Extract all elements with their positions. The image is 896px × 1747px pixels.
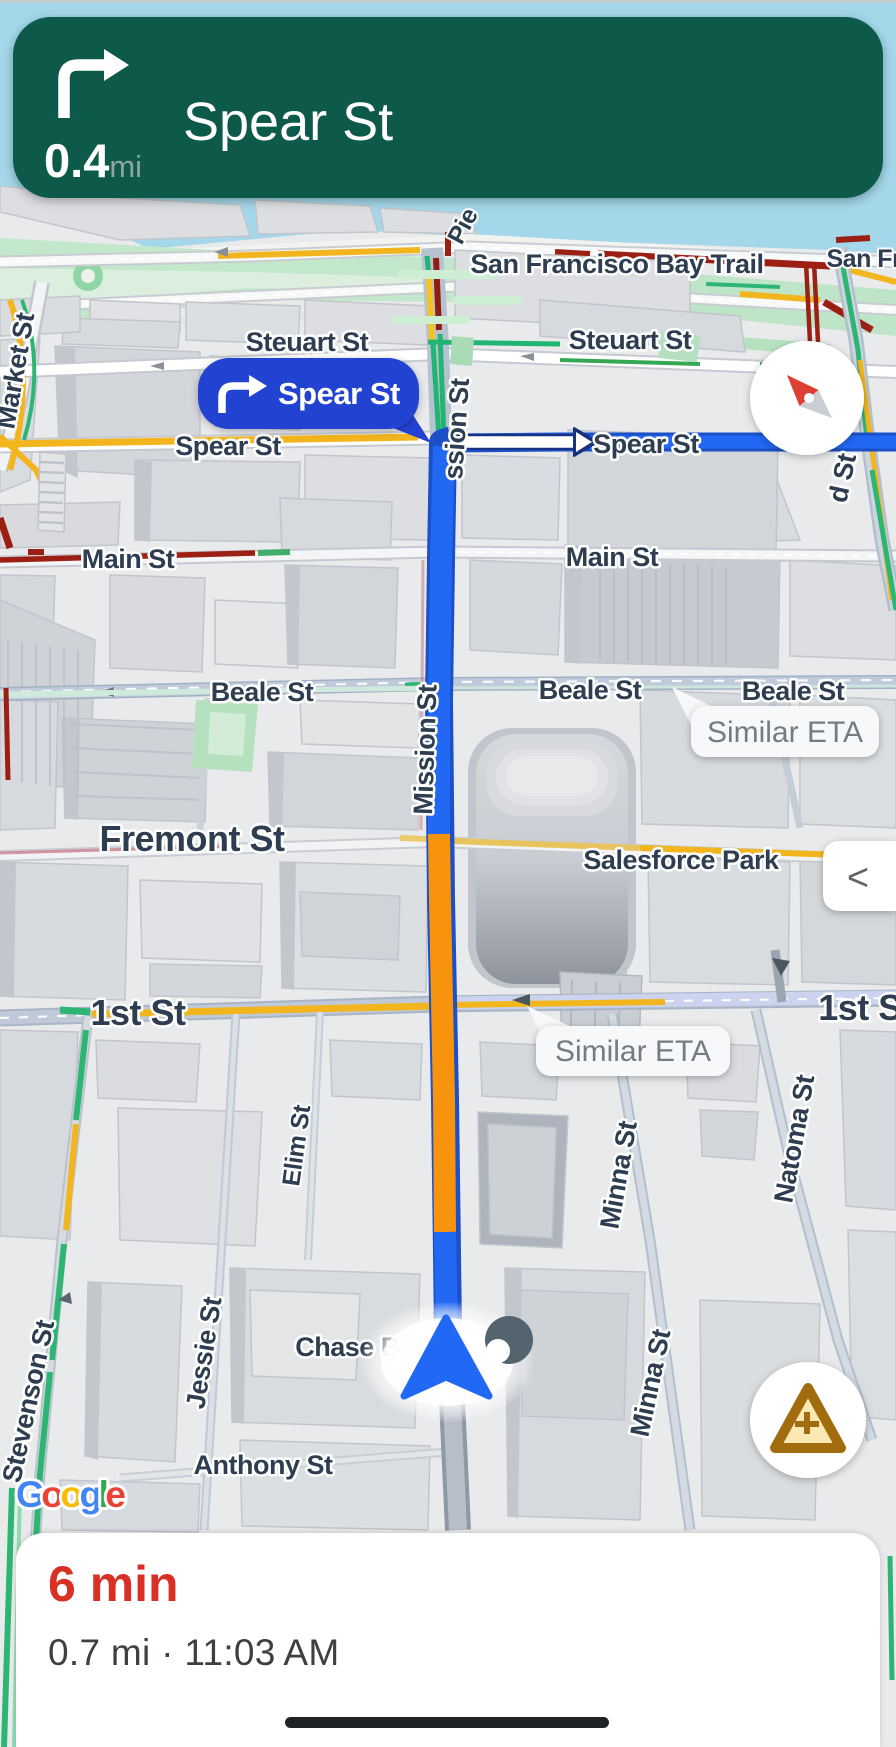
- svg-text:<: <: [847, 857, 869, 899]
- svg-text:Spear St: Spear St: [175, 431, 281, 461]
- svg-text:Main St: Main St: [82, 544, 175, 574]
- svg-text:Google: Google: [16, 1474, 125, 1515]
- svg-text:Steuart St: Steuart St: [246, 327, 369, 357]
- svg-text:Spear St: Spear St: [278, 376, 400, 411]
- svg-text:Similar ETA: Similar ETA: [555, 1035, 711, 1068]
- svg-text:Fremont St: Fremont St: [99, 818, 285, 859]
- svg-text:Anthony St: Anthony St: [194, 1450, 333, 1480]
- svg-text:Steuart St: Steuart St: [569, 325, 692, 355]
- svg-text:Beale St: Beale St: [742, 676, 845, 706]
- svg-text:Beale St: Beale St: [211, 677, 314, 707]
- svg-text:Main St: Main St: [566, 542, 659, 572]
- svg-text:Beale St: Beale St: [539, 675, 642, 705]
- svg-text:1st S: 1st S: [818, 987, 896, 1028]
- svg-text:Mission St: Mission St: [408, 684, 443, 815]
- svg-text:1st St: 1st St: [90, 992, 186, 1033]
- svg-text:Spear St: Spear St: [593, 429, 699, 459]
- svg-text:San Fran: San Fran: [827, 245, 896, 273]
- svg-text:Similar ETA: Similar ETA: [707, 716, 863, 749]
- svg-text:San Francisco Bay Trail: San Francisco Bay Trail: [470, 249, 763, 279]
- svg-text:Salesforce Park: Salesforce Park: [583, 845, 780, 875]
